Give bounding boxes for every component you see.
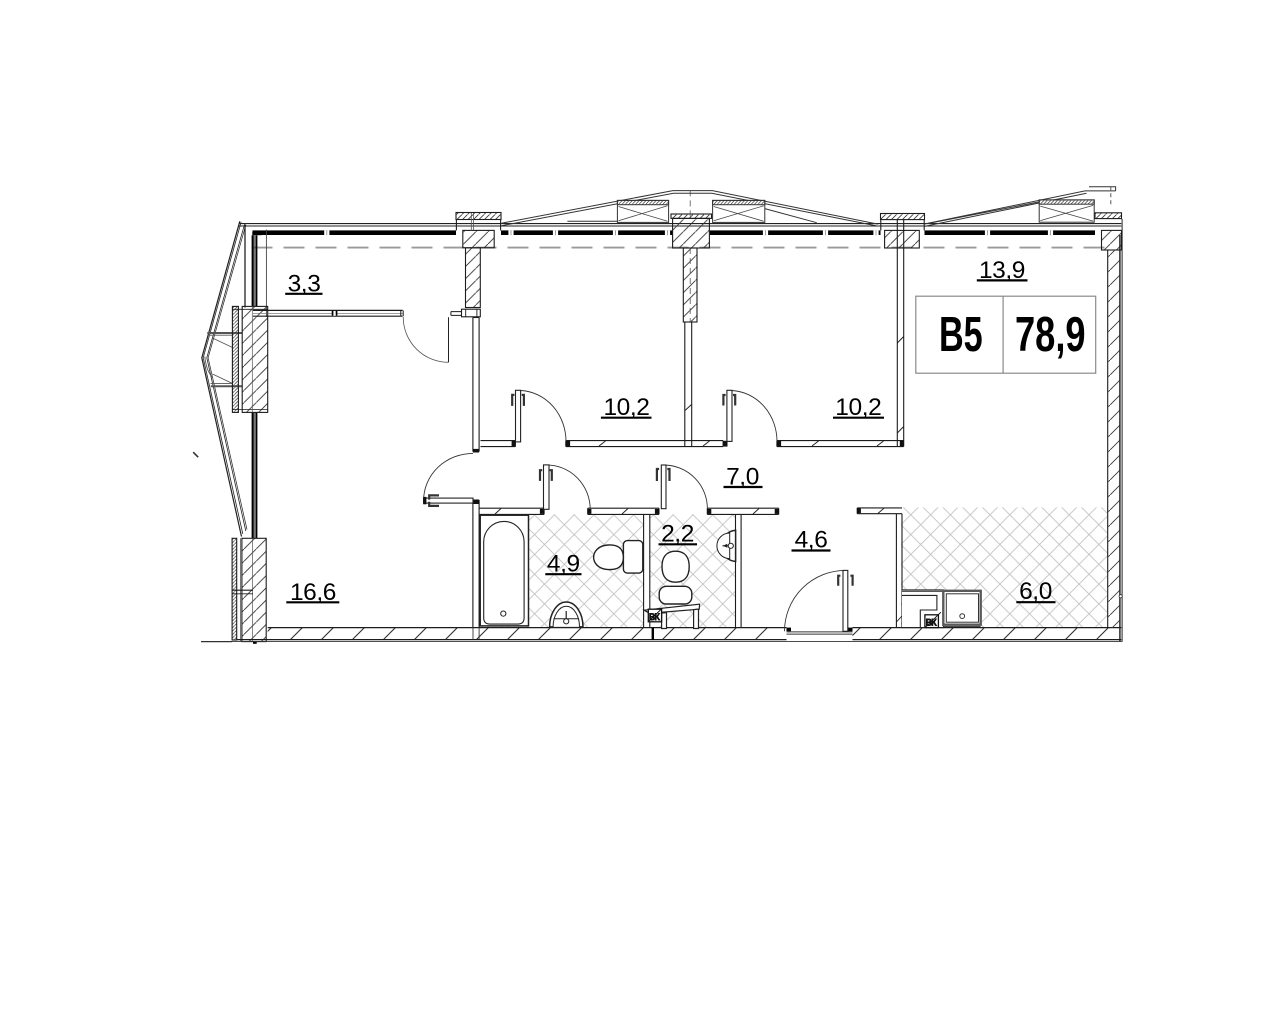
svg-text:ВК: ВК	[926, 618, 938, 628]
svg-text:78,9: 78,9	[1015, 308, 1086, 362]
svg-text:ВК: ВК	[649, 612, 661, 622]
svg-text:6,0: 6,0	[1019, 578, 1052, 605]
svg-text:В5: В5	[939, 308, 983, 362]
